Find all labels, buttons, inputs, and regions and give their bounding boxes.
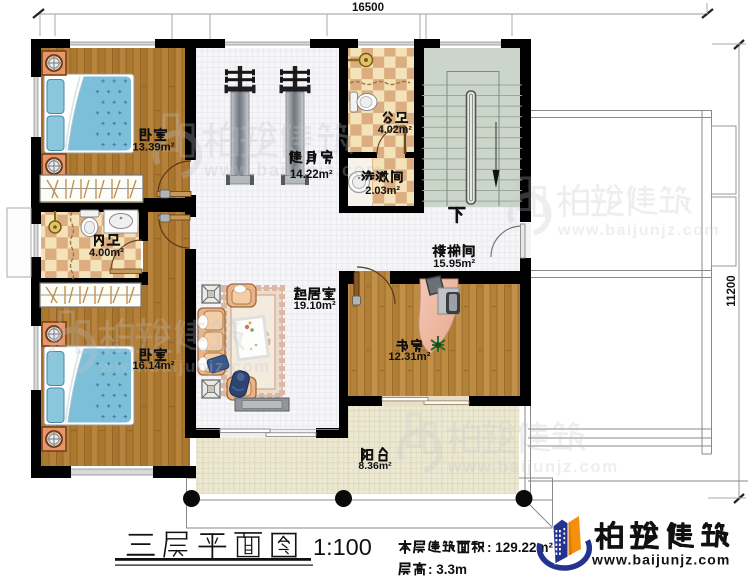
svg-text:11200: 11200 — [726, 275, 738, 306]
svg-text:14.22m²: 14.22m² — [290, 169, 333, 181]
svg-text:www.baijunjz.com: www.baijunjz.com — [557, 222, 720, 239]
svg-text:: 3.3m: : 3.3m — [428, 562, 467, 577]
svg-text:16500: 16500 — [352, 2, 384, 14]
svg-text:16.14m²: 16.14m² — [132, 360, 174, 372]
svg-text:8.36m²: 8.36m² — [358, 460, 392, 472]
svg-text:4.00m²: 4.00m² — [89, 247, 124, 259]
svg-text:www.baijunjz.com: www.baijunjz.com — [591, 552, 730, 568]
svg-text:12.31m²: 12.31m² — [388, 351, 430, 363]
svg-text:1:100: 1:100 — [313, 534, 372, 560]
svg-text:19.10m²: 19.10m² — [294, 300, 336, 312]
svg-text:4.02m²: 4.02m² — [378, 124, 413, 136]
svg-text:www.baijunjz.com: www.baijunjz.com — [99, 357, 271, 376]
svg-text:13.39m²: 13.39m² — [132, 142, 174, 154]
svg-text:2.03m²: 2.03m² — [365, 185, 400, 197]
svg-text:: 129.22m²: : 129.22m² — [487, 540, 554, 555]
svg-text:15.95m²: 15.95m² — [433, 258, 475, 270]
svg-text:www.baijunjz.com: www.baijunjz.com — [447, 457, 619, 476]
